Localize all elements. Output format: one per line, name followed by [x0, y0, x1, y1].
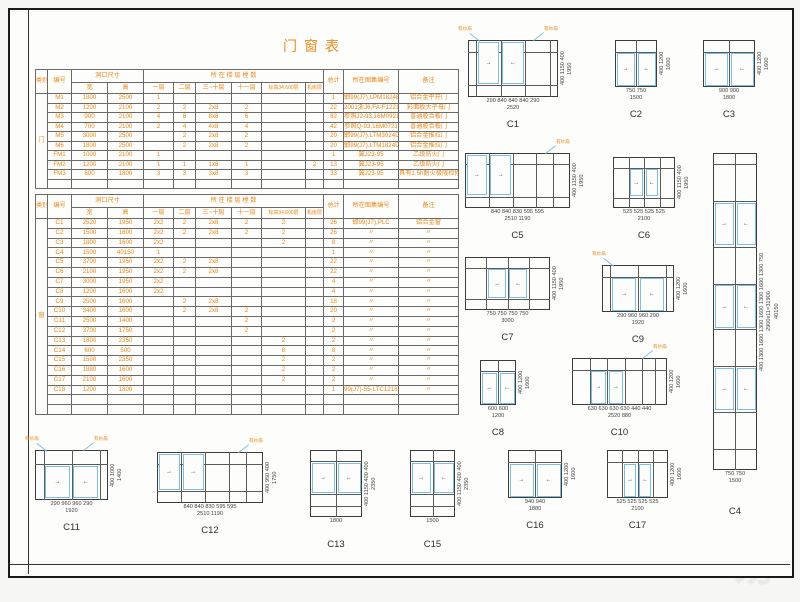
- table-row: C2150016002x222x82226〃〃: [36, 228, 459, 238]
- elevation-label: C13: [310, 539, 362, 550]
- table-cell: 2100: [108, 103, 144, 113]
- column-header: 类别: [36, 70, 48, 94]
- table-cell: 2: [232, 307, 262, 317]
- table-cell: [174, 151, 196, 161]
- table-cell: 2x2: [144, 267, 174, 277]
- table-cell: [306, 103, 324, 113]
- dimension-widths: 750 750: [695, 471, 775, 477]
- column-header: 二层: [174, 83, 196, 94]
- dimension-heights: 400 1150 400: [677, 157, 683, 208]
- table-cell: C8: [48, 287, 72, 297]
- table-cell: [306, 326, 324, 336]
- table-cell: [144, 395, 174, 405]
- table-cell: 2x8: [196, 258, 232, 268]
- table-cell: [306, 356, 324, 366]
- table-cell: 〃: [399, 385, 459, 395]
- table-cell: [262, 297, 306, 307]
- door-schedule-table: 类别编号洞口尺寸所 在 楼 层 樘 数总计所在图集编号备注宽高一层二层三~十层十…: [35, 69, 459, 189]
- table-cell: [306, 179, 324, 189]
- table-cell: 8: [324, 238, 344, 248]
- table-cell: 3700: [72, 326, 108, 336]
- table-cell: [196, 385, 232, 395]
- table-cell: 2001浙J6,FA-F1221: [344, 103, 399, 113]
- table-cell: 2: [232, 103, 262, 113]
- dimension-height-total: 1600: [764, 40, 770, 87]
- transom-line: [607, 462, 668, 463]
- dimension-height-total: 1950: [559, 257, 565, 310]
- dimension-width-total: 1800: [685, 95, 773, 101]
- table-cell: [232, 287, 262, 297]
- mullion-line: [660, 157, 661, 208]
- table-cell: [306, 346, 324, 356]
- sheet-title: 门窗表: [283, 36, 346, 56]
- elevation-label: C6: [613, 230, 675, 241]
- transom-line: [465, 197, 570, 198]
- column-header: 高: [108, 208, 144, 219]
- table-row: M53000250022x8220邯99(J7),LTM3024D铝合金推拉门: [36, 132, 459, 142]
- transom-line: [410, 506, 455, 507]
- table-cell: 1600: [108, 238, 144, 248]
- elevation-label: C15: [410, 539, 455, 550]
- table-cell: 20: [324, 141, 344, 151]
- table-cell: 2x8: [196, 228, 232, 238]
- table-cell: 6: [232, 113, 262, 123]
- table-row: C6210019502x222x822〃〃: [36, 267, 459, 277]
- dimension-width-total: 1500: [695, 478, 775, 484]
- sash-pane: →: [478, 42, 499, 84]
- table-cell: 冀J23-95: [344, 170, 399, 180]
- column-header: 标高34.600层: [262, 208, 306, 219]
- sash-pane: →: [159, 454, 180, 490]
- transom-line: [713, 412, 757, 413]
- table-cell: [306, 307, 324, 317]
- sash-pane: →: [612, 278, 637, 310]
- dimension-width-total: 1920: [584, 320, 692, 326]
- dimension-width-total: 2510 1190: [139, 511, 281, 517]
- table-cell: 2100: [108, 151, 144, 161]
- table-cell: 42: [324, 122, 344, 132]
- table-cell: [174, 356, 196, 366]
- table-cell: C14: [48, 346, 72, 356]
- elevation-C5: →→840 840 830 595 5952510 1190400 1150 4…: [465, 153, 570, 208]
- table-cell: 〃: [344, 228, 399, 238]
- table-cell: [174, 336, 196, 346]
- column-header: 一层: [144, 83, 174, 94]
- dimension-width-total: 2520: [450, 105, 576, 111]
- table-cell: 2500: [108, 141, 144, 151]
- table-cell: 普通胶合板门: [399, 113, 459, 123]
- dimension-width-total: 1200: [462, 413, 534, 419]
- sash-pane: ←: [509, 269, 527, 297]
- table-row: C161880160022〃〃: [36, 365, 459, 375]
- dimension-height-total: 2350: [464, 450, 470, 517]
- table-row: M61800250022x8220邯99(J7),LTM1824D铝合金推拉门: [36, 141, 459, 151]
- column-header: 所在图集编号: [344, 70, 399, 94]
- table-cell: [262, 385, 306, 395]
- table-cell: [144, 179, 174, 189]
- table-cell: [196, 316, 232, 326]
- column-header: 总计: [324, 195, 344, 219]
- column-header: 备注: [399, 70, 459, 94]
- table-cell: 1: [144, 248, 174, 258]
- table-cell: 1: [144, 94, 174, 104]
- table-cell: 2x8: [196, 307, 232, 317]
- table-cell: [174, 316, 196, 326]
- dimension-widths: 750 750: [597, 88, 675, 94]
- dimension-heights: 400 1150 400: [572, 153, 578, 208]
- table-cell: 22: [324, 267, 344, 277]
- table-cell: 2350: [108, 336, 144, 346]
- sash-leader-label: 有纱扇: [556, 139, 570, 145]
- table-cell: [262, 287, 306, 297]
- table-cell: [144, 132, 174, 142]
- mullion-line: [205, 452, 206, 503]
- table-row: M47002100244x8442参照Q-93,16M0721普通胶合板门: [36, 122, 459, 132]
- table-cell: 3: [174, 170, 196, 180]
- table-cell: [306, 375, 324, 385]
- table-cell: [262, 248, 306, 258]
- sash-pane: ←: [737, 285, 756, 328]
- mullion-line: [642, 358, 643, 405]
- sash-pane: ←: [638, 53, 656, 85]
- sash-pane: ←: [338, 463, 361, 493]
- table-cell: M4: [48, 122, 72, 132]
- table-cell: 2: [324, 326, 344, 336]
- table-cell: 1: [144, 160, 174, 170]
- table-cell: [262, 326, 306, 336]
- sash-pane: →: [488, 269, 506, 297]
- sash-pane: →: [510, 464, 534, 497]
- table-cell: [306, 132, 324, 142]
- table-cell: 2: [174, 228, 196, 238]
- table-cell: C18: [48, 385, 72, 395]
- dimension-heights: 400 1200: [669, 358, 675, 405]
- table-cell: M6: [48, 141, 72, 151]
- table-cell: 2: [174, 132, 196, 142]
- table-cell: 1: [324, 385, 344, 395]
- dimension-heights: 400 1200: [659, 40, 665, 87]
- table-cell: [232, 385, 262, 395]
- column-header: 宽: [72, 83, 108, 94]
- table-cell: [262, 122, 306, 132]
- table-cell: 2500: [108, 94, 144, 104]
- elevation-C17: →←525 525 525 5252100400 12001600C17: [607, 450, 668, 498]
- dimension-heights: 400 950 400: [265, 452, 271, 503]
- table-cell: 1800: [108, 385, 144, 395]
- table-cell: [48, 395, 72, 405]
- mullion-line: [100, 450, 101, 500]
- mullion-line: [513, 153, 514, 208]
- table-row: C112500140022〃〃: [36, 316, 459, 326]
- table-row: C92500160022x818〃〃: [36, 297, 459, 307]
- table-cell: C5: [48, 258, 72, 268]
- table-cell: 〃: [399, 287, 459, 297]
- sash-pane: →: [705, 53, 728, 85]
- dimension-height-total: 1600: [525, 360, 531, 405]
- table-cell: 〃: [399, 297, 459, 307]
- table-cell: [144, 141, 174, 151]
- sash-leader-label: 有纱扇: [592, 251, 606, 257]
- sash-pane: →: [312, 463, 335, 493]
- table-cell: 4: [232, 122, 262, 132]
- table-cell: [232, 258, 262, 268]
- elevation-C13: →←1800400 1150 400 4002350C13: [310, 450, 362, 517]
- table-cell: 1800: [72, 141, 108, 151]
- dimension-height-total: 1600: [677, 450, 683, 498]
- table-cell: [174, 326, 196, 336]
- table-cell: C1: [48, 219, 72, 229]
- table-cell: [306, 228, 324, 238]
- table-cell: [399, 405, 459, 415]
- frame-bottom-line: [8, 564, 790, 565]
- table-cell: 具有1.5h耐火极限检修门: [399, 170, 459, 180]
- table-cell: M5: [48, 132, 72, 142]
- transom-line: [713, 247, 757, 248]
- table-cell: 1600: [108, 365, 144, 375]
- table-cell: [174, 179, 196, 189]
- table-cell: [144, 297, 174, 307]
- transom-line: [713, 164, 757, 165]
- table-cell: 冀J23-95: [344, 151, 399, 161]
- table-cell: [108, 395, 144, 405]
- table-cell: [196, 336, 232, 346]
- elevation-label: C5: [465, 230, 570, 241]
- dimension-width-total: 3000: [447, 318, 568, 324]
- table-row: C1460050088〃〃: [36, 346, 459, 356]
- table-cell: 2: [262, 336, 306, 346]
- table-cell: [324, 395, 344, 405]
- elevation-label: C2: [615, 109, 657, 120]
- table-cell: [144, 346, 174, 356]
- table-cell: 4: [144, 113, 174, 123]
- dimension-height-total: 1750: [272, 452, 278, 503]
- table-cell: 2500: [108, 132, 144, 142]
- table-row: C123700175022〃〃: [36, 326, 459, 336]
- table-cell: [196, 94, 232, 104]
- sash-pane: →: [412, 463, 432, 493]
- table-cell: 3x8: [196, 170, 232, 180]
- table-cell: [306, 297, 324, 307]
- table-cell: 2x2: [144, 277, 174, 287]
- elevation-label: C16: [508, 520, 562, 531]
- table-cell: 2: [174, 103, 196, 113]
- table-cell: FM1: [48, 151, 72, 161]
- sash-pane: →: [715, 285, 734, 328]
- table-cell: [196, 356, 232, 366]
- column-header: 十一层: [232, 208, 262, 219]
- elevation-label: C4: [713, 506, 757, 517]
- table-cell: 2: [232, 141, 262, 151]
- column-header: 一层: [144, 208, 174, 219]
- transom-line: [713, 449, 757, 450]
- mullion-line: [536, 153, 537, 208]
- table-cell: [262, 141, 306, 151]
- dimension-heights: 400 1000: [110, 450, 116, 500]
- table-cell: 〃: [399, 336, 459, 346]
- dimension-widths: 900 900: [685, 88, 773, 94]
- table-cell: 〃: [399, 326, 459, 336]
- sash-leader-label: 有纱扇: [25, 436, 39, 442]
- table-cell: [232, 297, 262, 307]
- table-cell: [174, 375, 196, 385]
- table-cell: 3000: [72, 277, 108, 287]
- table-cell: 600: [72, 346, 108, 356]
- table-cell: 2100: [108, 160, 144, 170]
- sash-pane: ←: [639, 464, 651, 497]
- table-cell: 8: [262, 346, 306, 356]
- table-cell: C15: [48, 356, 72, 366]
- dimension-width-total: 2510 1190: [447, 216, 588, 222]
- table-cell: 1800: [108, 170, 144, 180]
- table-cell: 2: [324, 365, 344, 375]
- column-header: 十一层: [232, 83, 262, 94]
- table-cell: [306, 336, 324, 346]
- table-cell: 3: [144, 170, 174, 180]
- dimension-height-total: 2900x11=31900: [766, 153, 772, 470]
- elevation-C3: →←900 9001800400 12001600C3: [703, 40, 755, 87]
- dimension-height-total: 1600: [683, 265, 689, 312]
- table-cell: 900: [72, 113, 108, 123]
- mullion-line: [229, 452, 230, 503]
- table-cell: [174, 346, 196, 356]
- table-cell: 2x2: [144, 228, 174, 238]
- table-cell: 〃: [344, 287, 399, 297]
- column-header: 二层: [174, 208, 196, 219]
- table-cell: 2: [174, 219, 196, 229]
- table-cell: 2: [262, 375, 306, 385]
- dimension-widths: 525 525 525 525: [595, 209, 693, 215]
- transom-line: [410, 494, 455, 495]
- table-cell: [399, 395, 459, 405]
- table-cell: C6: [48, 267, 72, 277]
- table-cell: 〃: [344, 277, 399, 287]
- sash-pane: ←: [73, 466, 98, 499]
- dimension-height-total: 1950: [684, 157, 690, 208]
- table-cell: [262, 170, 306, 180]
- table-cell: [306, 219, 324, 229]
- table-cell: [262, 94, 306, 104]
- table-cell: [324, 405, 344, 415]
- table-cell: [399, 179, 459, 189]
- table-cell: 邯99(J7),LPM1824B: [344, 94, 399, 104]
- table-cell: 1200: [72, 385, 108, 395]
- table-cell: 4x8: [196, 122, 232, 132]
- dimension-widths: 1500: [392, 518, 473, 524]
- table-cell: [174, 94, 196, 104]
- table-cell: M2: [48, 103, 72, 113]
- column-header: 类别: [36, 195, 48, 219]
- dimension-width-total: 2520 880: [554, 413, 685, 419]
- table-cell: 2x8: [196, 141, 232, 151]
- table-cell: 〃: [344, 297, 399, 307]
- transom-line: [157, 491, 263, 492]
- table-cell: 8x8: [196, 113, 232, 123]
- table-cell: [144, 307, 174, 317]
- elevation-label: C1: [468, 119, 558, 130]
- table-cell: 4: [324, 287, 344, 297]
- mullion-line: [525, 40, 526, 97]
- table-cell: 700: [72, 122, 108, 132]
- table-cell: 2100: [108, 122, 144, 132]
- elevation-C7: →←750 750 750 7503000400 1150 4001950C7: [465, 257, 550, 310]
- table-cell: 冀J23-95: [344, 160, 399, 170]
- table-cell: [306, 258, 324, 268]
- table-cell: [262, 277, 306, 287]
- sash-leader-label: 有纱扇: [653, 344, 667, 350]
- table-cell: [72, 395, 108, 405]
- dimension-widths: 290 960 960 290: [584, 313, 692, 319]
- elevation-C8: →←600 6001200400 12001600C8: [480, 360, 516, 405]
- transom-line: [310, 494, 362, 495]
- table-cell: [144, 336, 174, 346]
- table-cell: 〃: [399, 346, 459, 356]
- mullion-line: [655, 358, 656, 405]
- dimension-widths: 600 600: [462, 406, 534, 412]
- table-cell: 2100: [108, 113, 144, 123]
- elevation-C9: →←290 960 960 2901920400 12001600C9有纱扇: [602, 265, 674, 312]
- table-cell: 1950: [108, 219, 144, 229]
- table-cell: 普通胶合板门: [399, 122, 459, 132]
- elevation-C12: →→840 840 830 595 5952510 1190400 950 40…: [157, 452, 263, 503]
- table-cell: [262, 113, 306, 123]
- dimension-heights: 400 1200: [670, 450, 676, 498]
- dimension-widths: 1800: [292, 518, 380, 524]
- table-cell: 2: [174, 141, 196, 151]
- column-header: 洞口尺寸: [72, 70, 144, 83]
- table-cell: 22: [324, 103, 344, 113]
- table-cell: M3: [48, 113, 72, 123]
- column-header: 所 在 楼 层 樘 数: [144, 195, 324, 208]
- table-cell: FM2: [48, 160, 72, 170]
- sash-pane: →: [609, 371, 624, 403]
- table-cell: [324, 179, 344, 189]
- dimension-heights: 400 1200: [676, 265, 682, 312]
- table-cell: [196, 346, 232, 356]
- elevation-C1: →←290 840 840 840 2902520400 1150 400195…: [468, 40, 558, 97]
- table-cell: [196, 365, 232, 375]
- table-cell: 〃: [344, 336, 399, 346]
- elevation-label: C8: [480, 427, 516, 438]
- table-cell: 600: [72, 170, 108, 180]
- table-row: C5370019502x222x822〃〃: [36, 258, 459, 268]
- table-cell: [232, 356, 262, 366]
- sash-pane: ←: [646, 169, 659, 196]
- table-cell: 99(J7)-55-LTC1218B: [344, 385, 399, 395]
- table-cell: 〃: [344, 316, 399, 326]
- table-cell: [48, 179, 72, 189]
- table-cell: 〃: [399, 248, 459, 258]
- table-cell: 2x8: [196, 103, 232, 113]
- table-cell: [144, 365, 174, 375]
- table-cell: [262, 405, 306, 415]
- window-schedule-table: 类别编号洞口尺寸所 在 楼 层 樘 数总计所在图集编号备注宽高一层二层三~十层十…: [35, 194, 459, 415]
- table-cell: 40150: [108, 248, 144, 258]
- table-cell: [262, 267, 306, 277]
- column-header: 所 在 楼 层 樘 数: [144, 70, 324, 83]
- table-cell: 〃: [344, 307, 399, 317]
- dimension-heights: 400 1150 400 400: [364, 450, 370, 517]
- dimension-widths: 525 525 525 525: [589, 499, 686, 505]
- table-cell: 邯99(J7),LTM1824D: [344, 141, 399, 151]
- table-cell: 1200: [72, 160, 108, 170]
- table-cell: 1500: [72, 248, 108, 258]
- table-cell: 〃: [399, 277, 459, 287]
- table-row: 窗C1252019502x222x82226邯99(J7),PLC铝合金窗: [36, 219, 459, 229]
- table-cell: C17: [48, 375, 72, 385]
- elevation-C11: →←290 960 960 2901920400 10001400C11有纱扇有…: [35, 450, 108, 500]
- table-row: C7300019502x24〃〃: [36, 277, 459, 287]
- table-cell: [306, 316, 324, 326]
